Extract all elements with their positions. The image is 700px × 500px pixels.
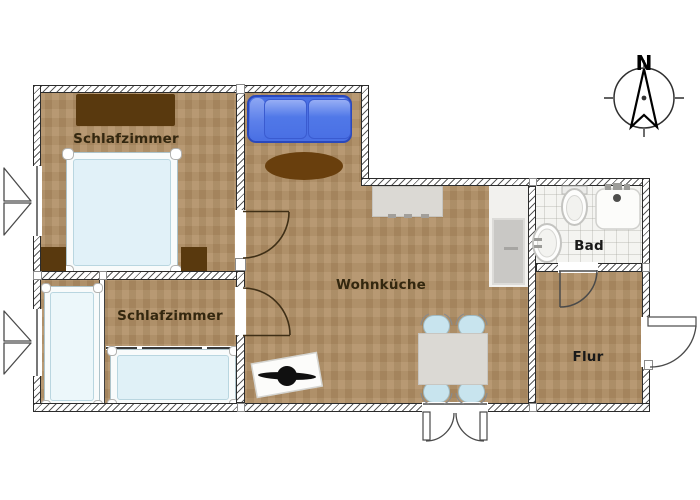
compass-rose: N bbox=[604, 51, 684, 137]
toilet bbox=[562, 186, 587, 225]
door-entrance-double bbox=[423, 412, 487, 441]
door-bathroom bbox=[560, 270, 597, 307]
label-bathroom: Bad bbox=[574, 238, 604, 254]
shower bbox=[596, 183, 640, 229]
sink bbox=[533, 224, 561, 262]
label-bedroom-bottom: Schlafzimmer bbox=[117, 308, 223, 324]
chair-armrest-marks bbox=[421, 314, 487, 404]
door-hallway-exterior bbox=[648, 317, 696, 367]
floor-plan: N Schlafzimmer Schlafzimmer Wohnküche Ba… bbox=[0, 0, 700, 500]
label-living-kitchen: Wohnküche bbox=[336, 277, 426, 293]
tv-board bbox=[251, 353, 322, 398]
window-top bbox=[4, 168, 31, 235]
label-bedroom-top: Schlafzimmer bbox=[73, 131, 179, 147]
window-bottom bbox=[4, 311, 31, 374]
label-hallway: Flur bbox=[573, 349, 604, 365]
compass-north-label: N bbox=[636, 51, 653, 75]
door-bedroom-top bbox=[243, 212, 289, 259]
door-bedroom-bottom bbox=[243, 288, 290, 336]
